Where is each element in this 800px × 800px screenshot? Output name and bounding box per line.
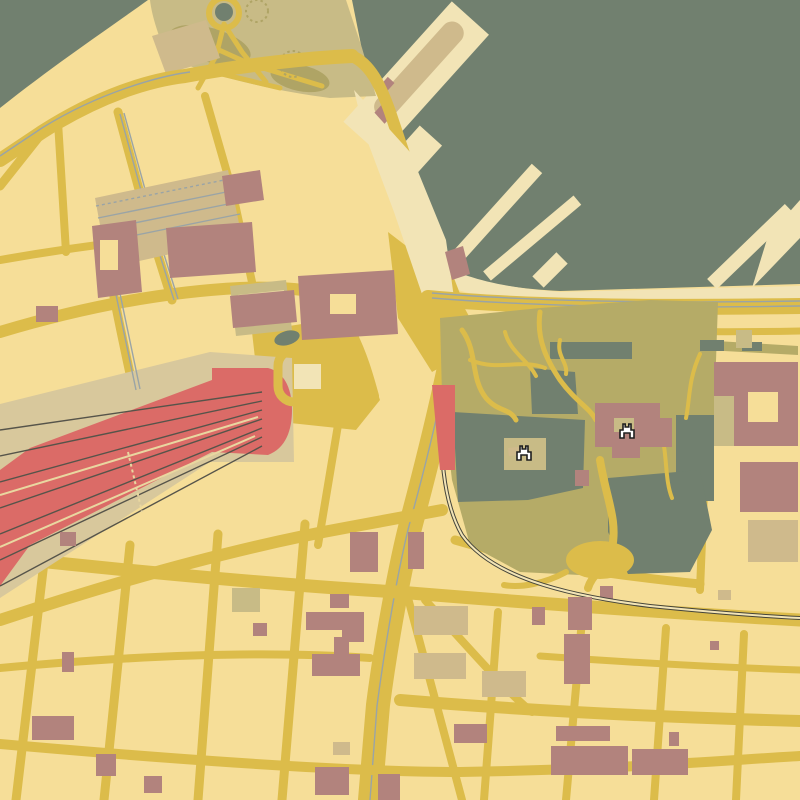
- building: [568, 597, 592, 630]
- building: [315, 767, 349, 795]
- building: [669, 732, 679, 746]
- building: [632, 749, 688, 775]
- building: [710, 641, 719, 650]
- building: [62, 652, 74, 672]
- building: [232, 588, 260, 612]
- park-plaza: [566, 541, 634, 579]
- building: [575, 470, 589, 486]
- building: [333, 742, 350, 755]
- building: [482, 671, 526, 697]
- building: [408, 532, 424, 569]
- building: [330, 594, 349, 608]
- courtyard: [330, 294, 356, 314]
- building: [714, 396, 734, 446]
- building: [740, 462, 798, 512]
- courtyard: [748, 392, 778, 422]
- building: [532, 607, 545, 625]
- building: [414, 606, 468, 635]
- city-map[interactable]: [0, 0, 800, 800]
- building: [312, 654, 360, 676]
- bus-island: [294, 364, 321, 389]
- building: [414, 653, 466, 679]
- building: [222, 170, 264, 206]
- courtyard: [100, 240, 118, 270]
- building: [556, 726, 610, 741]
- building: [253, 623, 267, 636]
- building: [718, 590, 731, 600]
- building: [551, 746, 628, 775]
- map-canvas[interactable]: [0, 0, 800, 800]
- building: [564, 634, 590, 684]
- building: [96, 754, 116, 776]
- building: [144, 776, 162, 793]
- building: [748, 520, 798, 562]
- pond: [700, 340, 724, 351]
- building: [378, 774, 400, 800]
- building: [230, 290, 297, 328]
- building: [60, 532, 76, 546]
- building: [454, 724, 487, 743]
- fountain-icon: [215, 3, 233, 21]
- building: [36, 306, 58, 322]
- building: [166, 222, 256, 278]
- building: [736, 330, 752, 348]
- building: [32, 716, 74, 740]
- building: [334, 637, 349, 657]
- building: [350, 532, 378, 572]
